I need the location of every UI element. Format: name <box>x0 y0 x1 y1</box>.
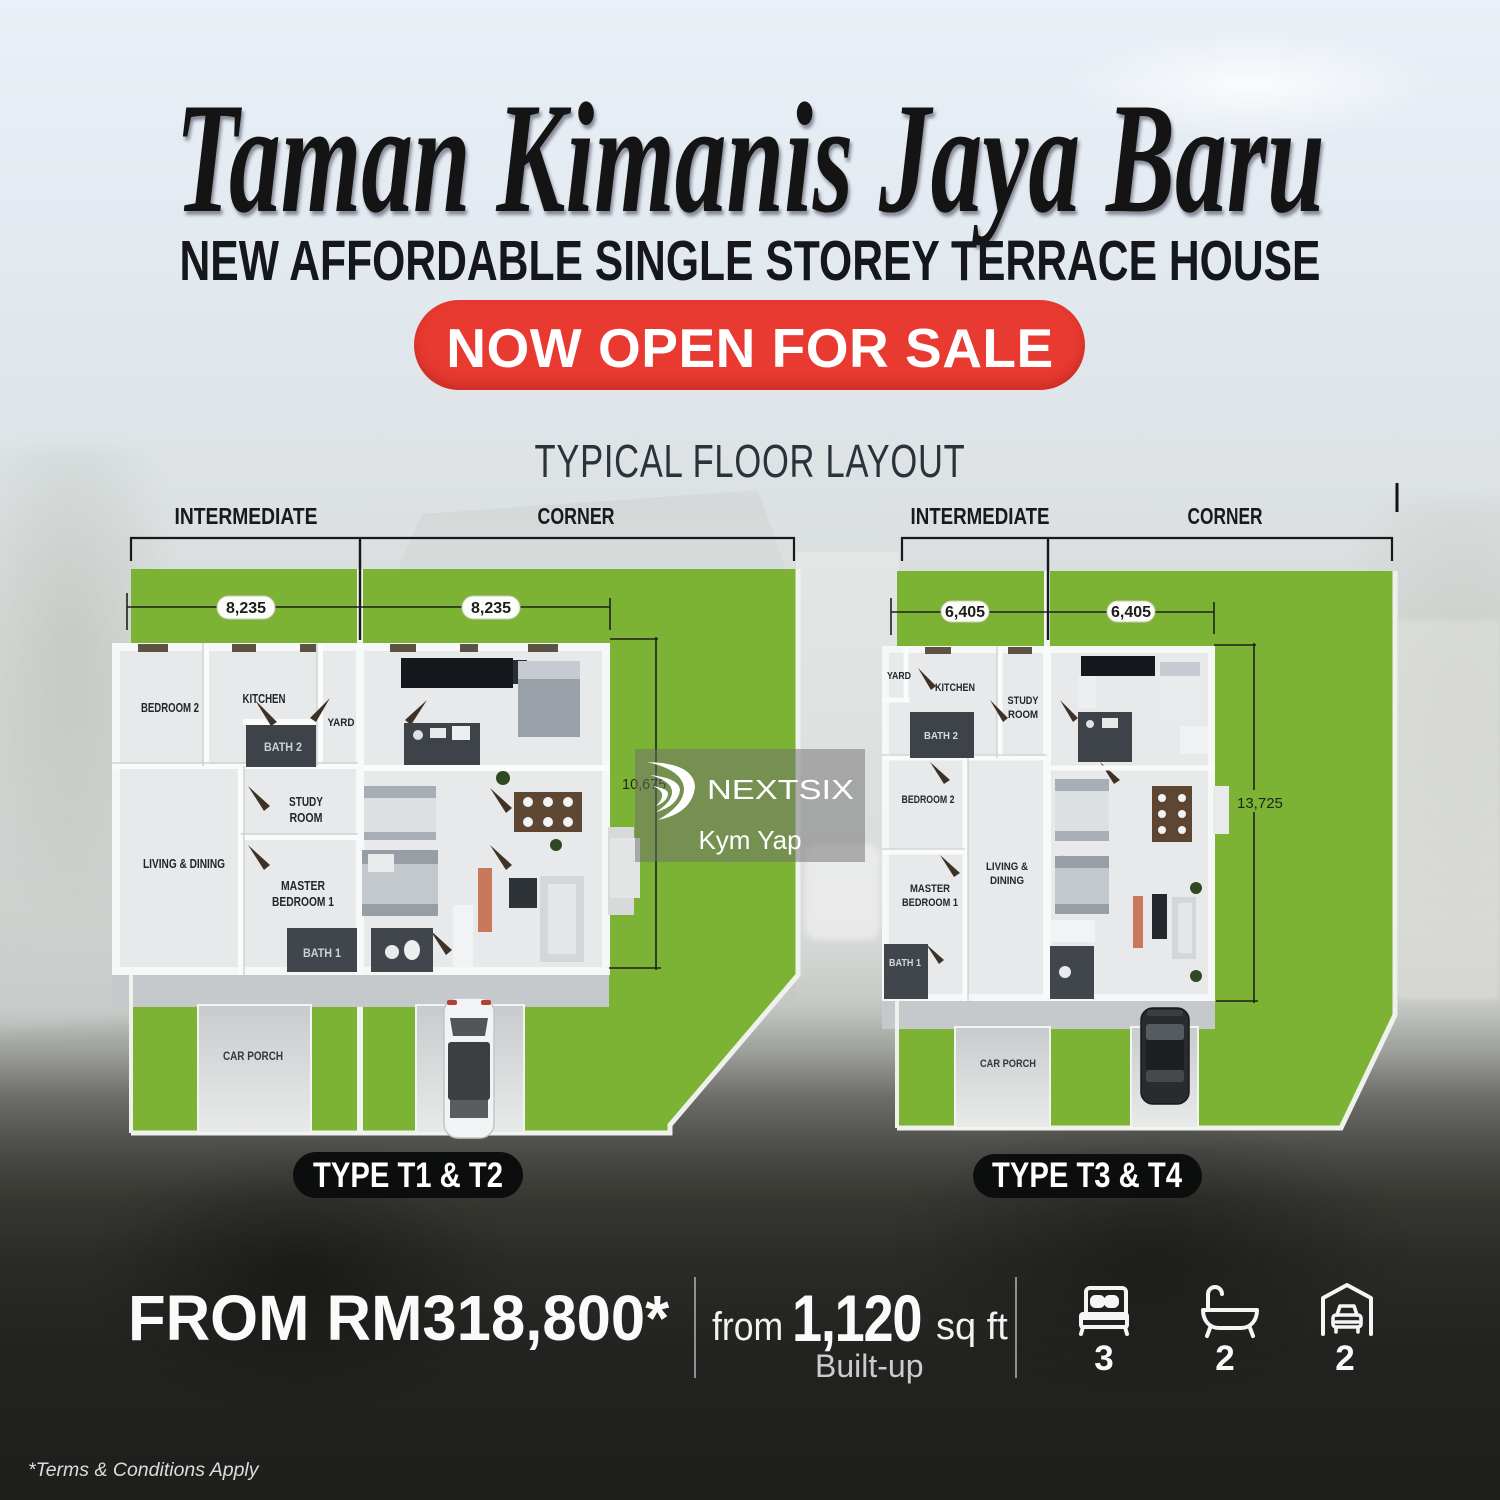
svg-text:KITCHEN: KITCHEN <box>243 692 286 706</box>
svg-text:8,235: 8,235 <box>226 600 266 617</box>
svg-text:BATH 1: BATH 1 <box>303 948 342 960</box>
svg-text:STUDY: STUDY <box>289 795 324 809</box>
svg-text:6,405: 6,405 <box>945 604 985 621</box>
svg-text:BEDROOM 2: BEDROOM 2 <box>141 701 199 715</box>
svg-text:LIVING &: LIVING & <box>986 861 1028 873</box>
svg-text:MASTER: MASTER <box>281 879 325 893</box>
svg-text:DINING: DINING <box>990 875 1024 887</box>
svg-text:Kym Yap: Kym Yap <box>698 825 801 855</box>
svg-text:TYPE T1 & T2: TYPE T1 & T2 <box>313 1156 503 1195</box>
svg-text:TYPE T3 & T4: TYPE T3 & T4 <box>992 1156 1182 1195</box>
svg-text:BATH 1: BATH 1 <box>889 958 921 969</box>
svg-text:2: 2 <box>1335 1339 1354 1378</box>
svg-text:YARD: YARD <box>887 671 911 682</box>
svg-text:MASTER: MASTER <box>910 883 950 895</box>
svg-text:CAR PORCH: CAR PORCH <box>980 1058 1036 1070</box>
svg-text:STUDY: STUDY <box>1008 695 1040 707</box>
svg-text:YARD: YARD <box>328 717 355 729</box>
svg-text:CORNER: CORNER <box>538 503 615 529</box>
svg-text:BEDROOM 1: BEDROOM 1 <box>902 897 958 909</box>
svg-text:ROOM: ROOM <box>290 811 323 825</box>
svg-text:INTERMEDIATE: INTERMEDIATE <box>911 503 1050 529</box>
svg-text:BEDROOM 1: BEDROOM 1 <box>272 895 334 909</box>
svg-text:3: 3 <box>1094 1339 1113 1378</box>
svg-text:BATH 2: BATH 2 <box>264 742 302 754</box>
svg-text:6,405: 6,405 <box>1111 604 1151 621</box>
svg-text:KITCHEN: KITCHEN <box>935 682 975 694</box>
svg-text:13,725: 13,725 <box>1237 795 1283 812</box>
svg-text:CAR PORCH: CAR PORCH <box>223 1051 283 1063</box>
svg-text:NEXTSIX: NEXTSIX <box>707 774 854 805</box>
svg-text:2: 2 <box>1215 1339 1234 1378</box>
svg-text:LIVING & DINING: LIVING & DINING <box>143 857 225 871</box>
svg-text:BATH 2: BATH 2 <box>924 731 958 742</box>
svg-text:CORNER: CORNER <box>1188 503 1263 529</box>
svg-text:ROOM: ROOM <box>1008 709 1038 721</box>
svg-text:BEDROOM 2: BEDROOM 2 <box>902 794 955 806</box>
svg-text:INTERMEDIATE: INTERMEDIATE <box>175 503 318 529</box>
svg-text:8,235: 8,235 <box>471 600 511 617</box>
